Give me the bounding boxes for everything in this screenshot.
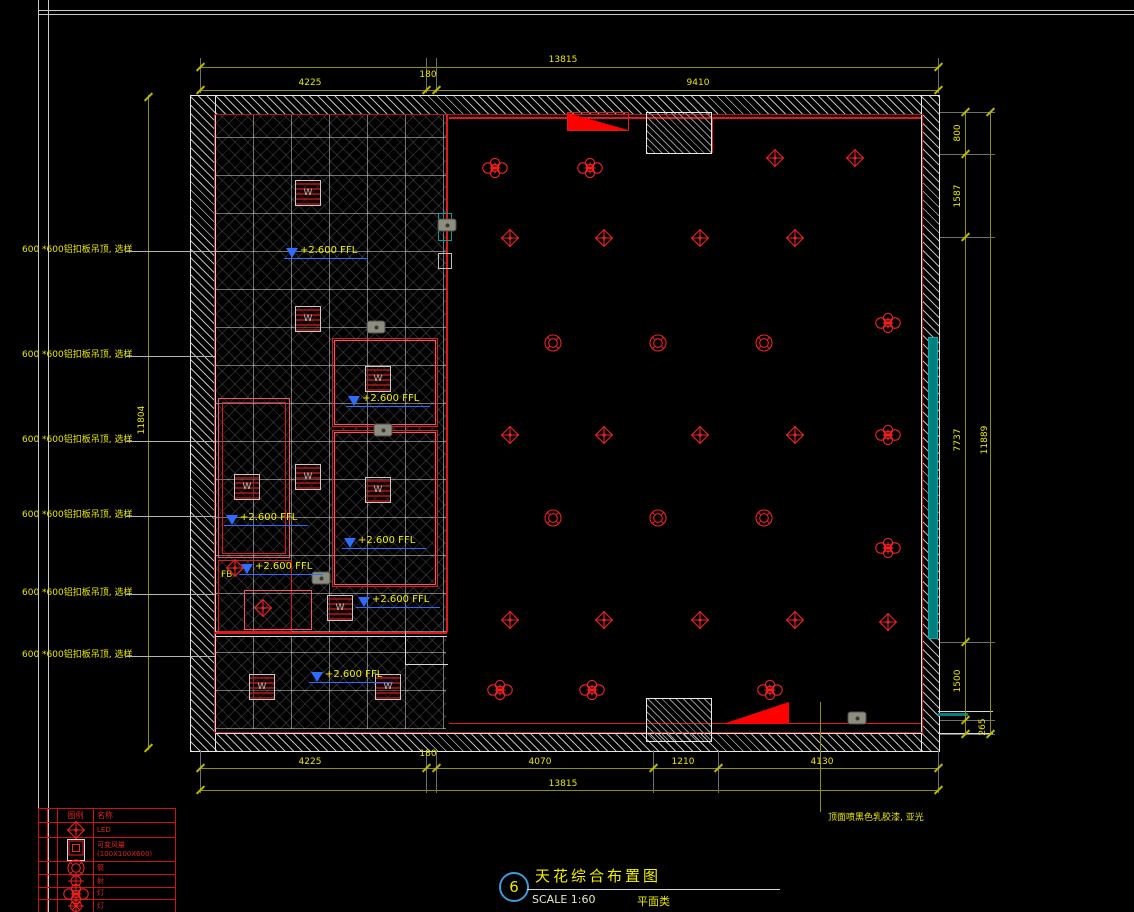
air-diffuser-symbol: W bbox=[249, 674, 275, 700]
red-wedge-top bbox=[568, 113, 628, 130]
hatched-shaft-bottom bbox=[646, 698, 712, 742]
diamond-light-symbol bbox=[844, 147, 866, 169]
dimension-label: 4070 bbox=[529, 757, 552, 767]
ceiling-note-text: 600 *600铝扣板吊顶, 选样 bbox=[22, 432, 132, 445]
dimension-label: 13815 bbox=[549, 779, 578, 789]
cad-ceiling-plan-sheet: 顶面喷黑色乳胶漆, 亚光 FB WWWWWWWWW 13815422518094… bbox=[0, 0, 1134, 912]
ffl-level-label: +2.600 FFL bbox=[342, 535, 426, 551]
red-line-shaft-top bbox=[712, 117, 713, 153]
speaker-symbol bbox=[848, 712, 867, 725]
ceiling-note-text: 600 *600铝扣板吊顶, 选样 bbox=[22, 507, 132, 520]
diamond-light-symbol bbox=[499, 424, 521, 446]
teal-sill-line bbox=[938, 713, 968, 716]
ceiling-note-leader bbox=[126, 656, 215, 657]
interior-red-outline bbox=[214, 114, 923, 733]
legend-label-text: 射 bbox=[97, 877, 175, 885]
speaker-symbol bbox=[438, 219, 457, 232]
legend-cell-a bbox=[39, 900, 48, 912]
wall-bottom bbox=[190, 733, 940, 752]
extension-line-right bbox=[940, 154, 995, 155]
legend-row: 可变风量(100X100X600) bbox=[39, 838, 176, 862]
flower-light-symbol bbox=[873, 312, 903, 334]
legend-symbol-target bbox=[58, 900, 94, 912]
round-light-symbol bbox=[647, 507, 669, 529]
level-triangle-icon bbox=[311, 672, 323, 682]
red-wedge-bottom bbox=[723, 702, 789, 724]
red-wedge-bottom-frame bbox=[723, 702, 789, 724]
legend-label: 射 bbox=[94, 875, 176, 887]
wall-top bbox=[190, 95, 940, 115]
diamond-light-symbol bbox=[784, 227, 806, 249]
ffl-level-label: +2.600 FFL bbox=[239, 561, 323, 577]
diamond-light-symbol bbox=[877, 611, 899, 633]
ffl-underline bbox=[346, 406, 430, 407]
extension-line-right bbox=[940, 642, 995, 643]
legend-row: 灯 bbox=[39, 900, 176, 912]
wall-left bbox=[190, 95, 216, 752]
air-diffuser-symbol: W bbox=[295, 306, 321, 332]
drawing-title: 天花综合布置图 bbox=[535, 865, 661, 886]
flower-light-symbol bbox=[873, 537, 903, 559]
legend-col-narrow-a bbox=[39, 809, 48, 822]
legend-cell-a bbox=[39, 838, 48, 861]
speaker-symbol bbox=[374, 424, 393, 437]
legend-cell-b bbox=[48, 838, 58, 861]
teal-glazing-strip bbox=[928, 337, 938, 639]
target-icon bbox=[67, 897, 85, 912]
right-note-text: 顶面喷黑色乳胶漆, 亚光 bbox=[828, 810, 924, 823]
drawing-scale: SCALE 1:60 bbox=[532, 893, 595, 906]
legend-col-narrow-b bbox=[48, 809, 58, 822]
diamond-light-symbol bbox=[499, 609, 521, 631]
detail-number: 6 bbox=[509, 878, 519, 896]
ceiling-note-leader bbox=[126, 516, 215, 517]
legend-symbol-diamond bbox=[58, 823, 94, 837]
dimension-label: 11804 bbox=[137, 406, 147, 435]
legend-row: LED bbox=[39, 823, 176, 838]
dim-line-top-overall bbox=[200, 67, 938, 68]
ffl-underline bbox=[239, 574, 323, 575]
ffl-underline bbox=[284, 258, 368, 259]
partition-fitting-white bbox=[438, 253, 452, 269]
air-diffuser-symbol: W bbox=[295, 180, 321, 206]
legend-cell-b bbox=[48, 823, 58, 837]
dimension-label: 1587 bbox=[953, 185, 963, 208]
dimension-label: 4130 bbox=[811, 757, 834, 767]
legend-label: LED bbox=[94, 823, 176, 837]
dimension-label: 800 bbox=[953, 124, 963, 141]
extension-line-bottom bbox=[653, 750, 654, 793]
ffl-underline bbox=[356, 607, 440, 608]
dimension-label: 9410 bbox=[687, 78, 710, 88]
ceiling-note-text: 600 *600铝扣板吊顶, 选样 bbox=[22, 585, 132, 598]
dimension-label: 11889 bbox=[980, 426, 990, 455]
ceiling-note-text: 600 *600铝扣板吊顶, 选样 bbox=[22, 647, 132, 660]
level-triangle-icon bbox=[348, 396, 360, 406]
sheet-border-top-inner bbox=[38, 14, 1134, 15]
dimension-tick bbox=[934, 85, 943, 94]
diamond-light-symbol bbox=[689, 424, 711, 446]
air-diffuser-symbol: W bbox=[365, 477, 391, 503]
round-light-symbol bbox=[753, 332, 775, 354]
ffl-text: +2.600 FFL bbox=[300, 245, 357, 256]
dimension-tick bbox=[934, 785, 943, 794]
legend-label: 灯 bbox=[94, 900, 176, 912]
dim-line-left-overall bbox=[148, 95, 149, 750]
legend-cell-a bbox=[39, 875, 48, 887]
legend-label-text: 可变风量 bbox=[97, 841, 175, 849]
extension-line-bottom bbox=[718, 750, 719, 793]
ffl-level-label: +2.600 FFL bbox=[224, 512, 308, 528]
diamond-light-symbol bbox=[784, 609, 806, 631]
extension-line-right bbox=[940, 237, 995, 238]
dimension-label: 180 bbox=[419, 749, 436, 759]
legend-label-text2: (100X100X600) bbox=[97, 850, 175, 858]
flower-light-symbol bbox=[480, 157, 510, 179]
drawing-category: 平面类 bbox=[637, 893, 670, 909]
air-diffuser-symbol: W bbox=[365, 366, 391, 392]
ffl-level-label: +2.600 FFL bbox=[284, 245, 368, 261]
dimension-label: 4225 bbox=[299, 78, 322, 88]
level-triangle-icon bbox=[226, 515, 238, 525]
ceiling-note-text: 600 *600铝扣板吊顶, 选样 bbox=[22, 347, 132, 360]
legend-label-text: LED bbox=[97, 826, 175, 834]
legend-label-text: 灯 bbox=[97, 889, 175, 897]
flower-light-symbol bbox=[873, 424, 903, 446]
round-light-symbol bbox=[542, 507, 564, 529]
ffl-text: +2.600 FFL bbox=[362, 393, 419, 404]
hatched-shaft-top bbox=[646, 112, 712, 154]
speaker-symbol bbox=[367, 321, 386, 334]
white-step-line bbox=[405, 632, 448, 665]
legend-header-name: 名称 bbox=[94, 809, 176, 822]
legend-label-text: 筒 bbox=[97, 864, 175, 872]
ffl-text: +2.600 FFL bbox=[358, 535, 415, 546]
dim-line-bottom-segments bbox=[200, 768, 938, 769]
ffl-text: +2.600 FFL bbox=[372, 594, 429, 605]
level-triangle-icon bbox=[344, 538, 356, 548]
ffl-underline bbox=[224, 525, 308, 526]
flower-light-symbol bbox=[577, 679, 607, 701]
flower-light-symbol bbox=[755, 679, 785, 701]
dimension-label: 7737 bbox=[953, 429, 963, 452]
legend-label-text: 灯 bbox=[97, 902, 175, 910]
legend-label: 灯 bbox=[94, 888, 176, 899]
partition-wall-vertical bbox=[446, 114, 448, 632]
level-triangle-icon bbox=[241, 564, 253, 574]
ffl-level-label: +2.600 FFL bbox=[356, 594, 440, 610]
legend-cell-b bbox=[48, 875, 58, 887]
diamond-light-symbol bbox=[689, 609, 711, 631]
legend-cell-b bbox=[48, 888, 58, 899]
legend-cell-a bbox=[39, 888, 48, 899]
ffl-text: +2.600 FFL bbox=[255, 561, 312, 572]
dim-line-right-overall bbox=[990, 112, 991, 734]
diamond-light-symbol bbox=[593, 609, 615, 631]
diamond-light-symbol bbox=[764, 147, 786, 169]
ffl-underline bbox=[309, 682, 393, 683]
legend-table: 图例名称LED可变风量(100X100X600)筒射灯灯 bbox=[38, 808, 176, 912]
diamond-light-symbol bbox=[252, 597, 274, 619]
legend-cell-a bbox=[39, 823, 48, 837]
round-light-symbol bbox=[542, 332, 564, 354]
dimension-label: 13815 bbox=[549, 55, 578, 65]
ffl-text: +2.600 FFL bbox=[240, 512, 297, 523]
ffl-underline bbox=[342, 548, 426, 549]
bulkhead-room-c-inner bbox=[334, 432, 436, 585]
dimension-label: 1500 bbox=[953, 670, 963, 693]
dim-line-bottom-overall bbox=[200, 790, 938, 791]
ffl-text: +2.600 FFL bbox=[325, 669, 382, 680]
legend-label: 筒 bbox=[94, 862, 176, 874]
legend-label: 可变风量(100X100X600) bbox=[94, 838, 176, 861]
red-wedge-top-frame bbox=[567, 112, 629, 131]
level-triangle-icon bbox=[358, 597, 370, 607]
round-light-symbol bbox=[753, 507, 775, 529]
sheet-border-top-outer bbox=[38, 10, 1134, 11]
legend-cell-b bbox=[48, 862, 58, 874]
dimension-label: 180 bbox=[419, 70, 436, 80]
air-diffuser-symbol: W bbox=[327, 595, 353, 621]
air-diffuser-symbol: W bbox=[234, 474, 260, 500]
ffl-level-label: +2.600 FFL bbox=[346, 393, 430, 409]
diamond-light-symbol bbox=[499, 227, 521, 249]
detail-number-bubble: 6 bbox=[499, 872, 529, 902]
ceiling-note-leader bbox=[126, 441, 215, 442]
legend-row: 筒 bbox=[39, 862, 176, 875]
dimension-label: 265 bbox=[978, 718, 988, 735]
title-underline bbox=[527, 889, 780, 890]
legend-header-row: 图例名称 bbox=[39, 809, 176, 823]
flower-light-symbol bbox=[485, 679, 515, 701]
air-diffuser-symbol: W bbox=[295, 464, 321, 490]
round-light-symbol bbox=[647, 332, 669, 354]
flower-light-symbol bbox=[575, 157, 605, 179]
sheet-border-left-outer bbox=[38, 0, 39, 912]
legend-cell-a bbox=[39, 862, 48, 874]
dimension-tick bbox=[144, 743, 153, 752]
ceiling-note-leader bbox=[126, 594, 215, 595]
sheet-border-left-inner bbox=[48, 0, 49, 912]
ceiling-note-leader bbox=[126, 251, 240, 252]
diamond-light-symbol bbox=[784, 424, 806, 446]
legend-row: 灯 bbox=[39, 888, 176, 900]
level-triangle-icon bbox=[286, 248, 298, 258]
ffl-level-label: +2.600 FFL bbox=[309, 669, 393, 685]
ceiling-note-text: 600 *600铝扣板吊顶, 选样 bbox=[22, 242, 132, 255]
diamond-light-symbol bbox=[593, 227, 615, 249]
diamond-light-symbol bbox=[689, 227, 711, 249]
ceiling-note-leader bbox=[126, 356, 215, 357]
dim-line-top-segments bbox=[200, 90, 938, 91]
legend-cell-b bbox=[48, 900, 58, 912]
diamond-light-symbol bbox=[593, 424, 615, 446]
dimension-label: 1210 bbox=[672, 757, 695, 767]
dimension-label: 4225 bbox=[299, 757, 322, 767]
